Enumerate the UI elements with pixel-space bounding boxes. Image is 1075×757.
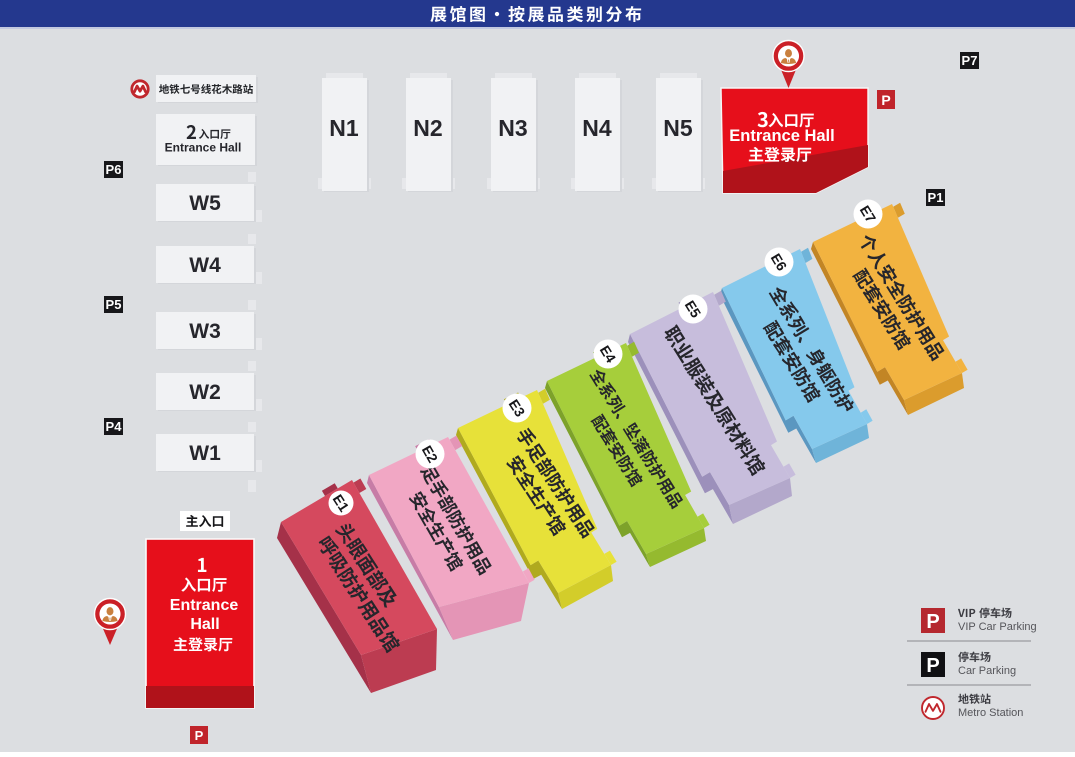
svg-text:N3: N3 xyxy=(498,115,527,141)
svg-text:Entrance Hall: Entrance Hall xyxy=(729,127,834,145)
svg-text:P: P xyxy=(195,728,204,743)
svg-text:P: P xyxy=(881,92,890,108)
svg-text:Hall: Hall xyxy=(190,616,219,633)
svg-text:W1: W1 xyxy=(189,442,221,465)
svg-text:P6: P6 xyxy=(106,162,122,177)
svg-text:P4: P4 xyxy=(106,419,123,434)
svg-text:Entrance: Entrance xyxy=(170,597,239,614)
svg-text:N2: N2 xyxy=(413,115,442,141)
svg-text:W4: W4 xyxy=(189,254,221,277)
svg-text:Car Parking: Car Parking xyxy=(958,665,1016,677)
svg-text:VIP Car Parking: VIP Car Parking xyxy=(958,621,1037,633)
svg-text:N1: N1 xyxy=(329,115,359,141)
svg-text:P7: P7 xyxy=(962,53,978,68)
svg-text:W2: W2 xyxy=(189,381,221,404)
svg-text:Entrance Hall: Entrance Hall xyxy=(165,141,242,155)
svg-text:P5: P5 xyxy=(106,297,122,312)
svg-text:P: P xyxy=(926,611,939,633)
svg-text:P1: P1 xyxy=(928,190,944,205)
svg-text:N4: N4 xyxy=(582,115,612,141)
svg-text:Metro Station: Metro Station xyxy=(958,707,1023,719)
svg-text:N5: N5 xyxy=(663,115,693,141)
svg-text:P: P xyxy=(926,655,939,677)
svg-text:W5: W5 xyxy=(189,192,221,215)
svg-text:W3: W3 xyxy=(189,320,221,343)
